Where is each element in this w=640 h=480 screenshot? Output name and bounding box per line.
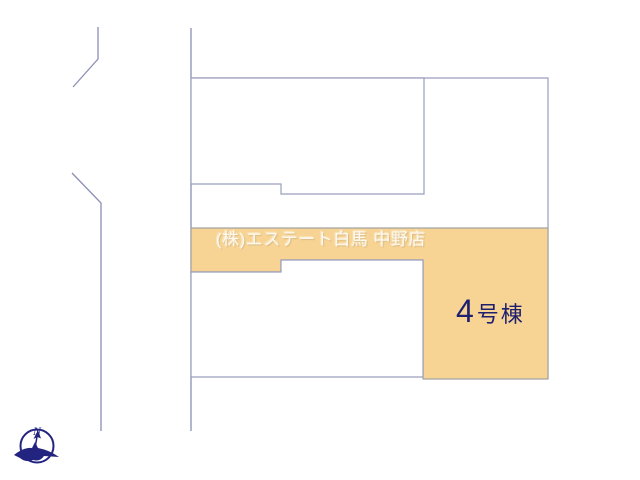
compass-north-label: N — [28, 424, 46, 439]
road-edge-upper — [73, 27, 98, 87]
road-edge-lower — [72, 173, 101, 431]
lower-parcel-outline — [191, 260, 423, 377]
lot-4-number: 4 — [456, 293, 475, 330]
lot-4-label: 4 号棟 — [456, 293, 525, 330]
upper-parcel-outline — [191, 78, 424, 194]
lot-4-suffix: 号棟 — [477, 297, 525, 329]
site-plan-canvas: (株)エステート白馬 中野店 4 号棟 N — [0, 0, 640, 480]
company-watermark: (株)エステート白馬 中野店 — [216, 230, 426, 249]
